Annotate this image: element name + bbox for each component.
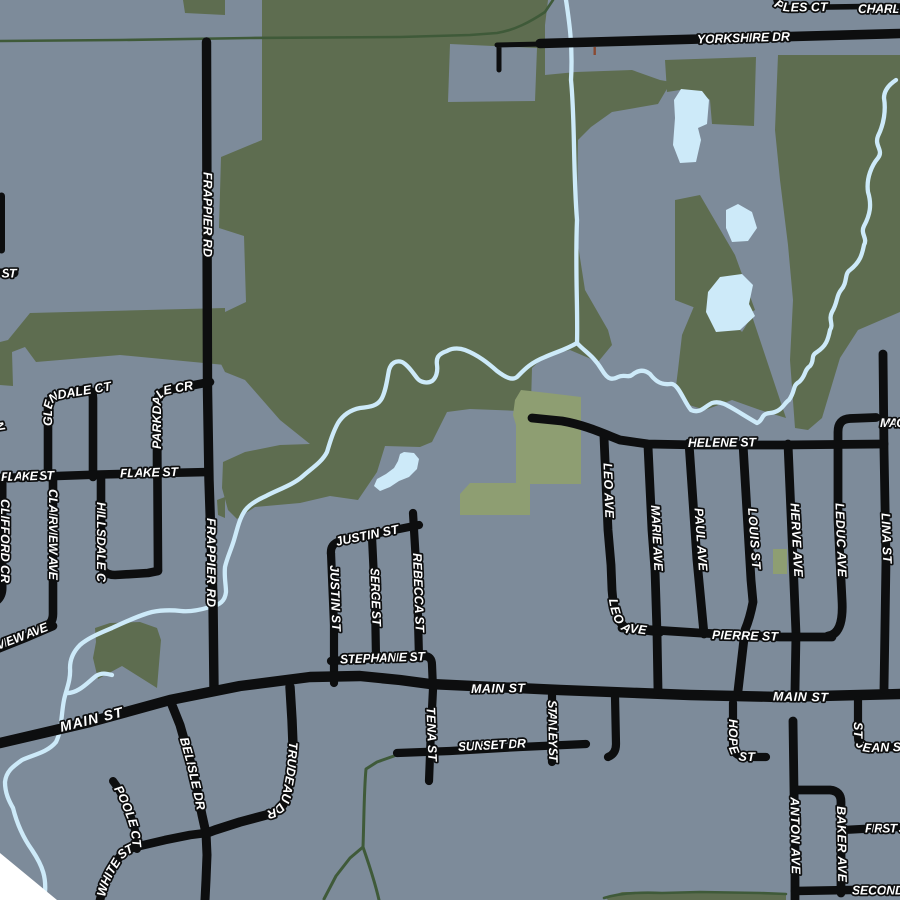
svg-text:YORKSHIRE DR: YORKSHIRE DR <box>697 30 790 47</box>
svg-text:ST: ST <box>2 267 18 281</box>
svg-text:CLAIRVIEW AVE: CLAIRVIEW AVE <box>46 489 60 581</box>
svg-text:ANTON AVE: ANTON AVE <box>787 796 802 875</box>
svg-text:SECOND: SECOND <box>852 884 900 898</box>
svg-text:LINA ST: LINA ST <box>879 513 895 565</box>
svg-text:TENA ST: TENA ST <box>424 707 440 763</box>
svg-text:LEO AVE: LEO AVE <box>601 463 617 519</box>
svg-text:MAIN ST: MAIN ST <box>773 690 830 705</box>
svg-text:LEDUC AVE: LEDUC AVE <box>833 503 850 578</box>
svg-text:JUSTIN ST: JUSTIN ST <box>327 565 343 633</box>
svg-text:FRAPPIER RD: FRAPPIER RD <box>204 518 218 607</box>
svg-text:REBECCA ST: REBECCA ST <box>410 553 427 634</box>
svg-text:MACP: MACP <box>880 416 900 430</box>
svg-text:BAKER AVE: BAKER AVE <box>834 806 849 883</box>
svg-text:FLAKE ST: FLAKE ST <box>120 465 180 481</box>
svg-text:FLAKE ST: FLAKE ST <box>1 469 56 484</box>
svg-text:HILLSDALE C: HILLSDALE C <box>94 502 108 583</box>
svg-text:FIRST S: FIRST S <box>865 822 900 836</box>
svg-text:STANLEY ST: STANLEY ST <box>545 700 560 764</box>
svg-text:PIERRE ST: PIERRE ST <box>712 628 780 644</box>
svg-text:HELENE ST: HELENE ST <box>688 435 757 450</box>
svg-text:FRAPPIER RD: FRAPPIER RD <box>201 172 215 257</box>
svg-text:CHARLE: CHARLE <box>858 2 900 16</box>
svg-text:CLIFFORD CR: CLIFFORD CR <box>0 499 12 583</box>
svg-text:SERGE ST: SERGE ST <box>368 568 384 628</box>
svg-text:MAIN ST: MAIN ST <box>471 681 527 696</box>
